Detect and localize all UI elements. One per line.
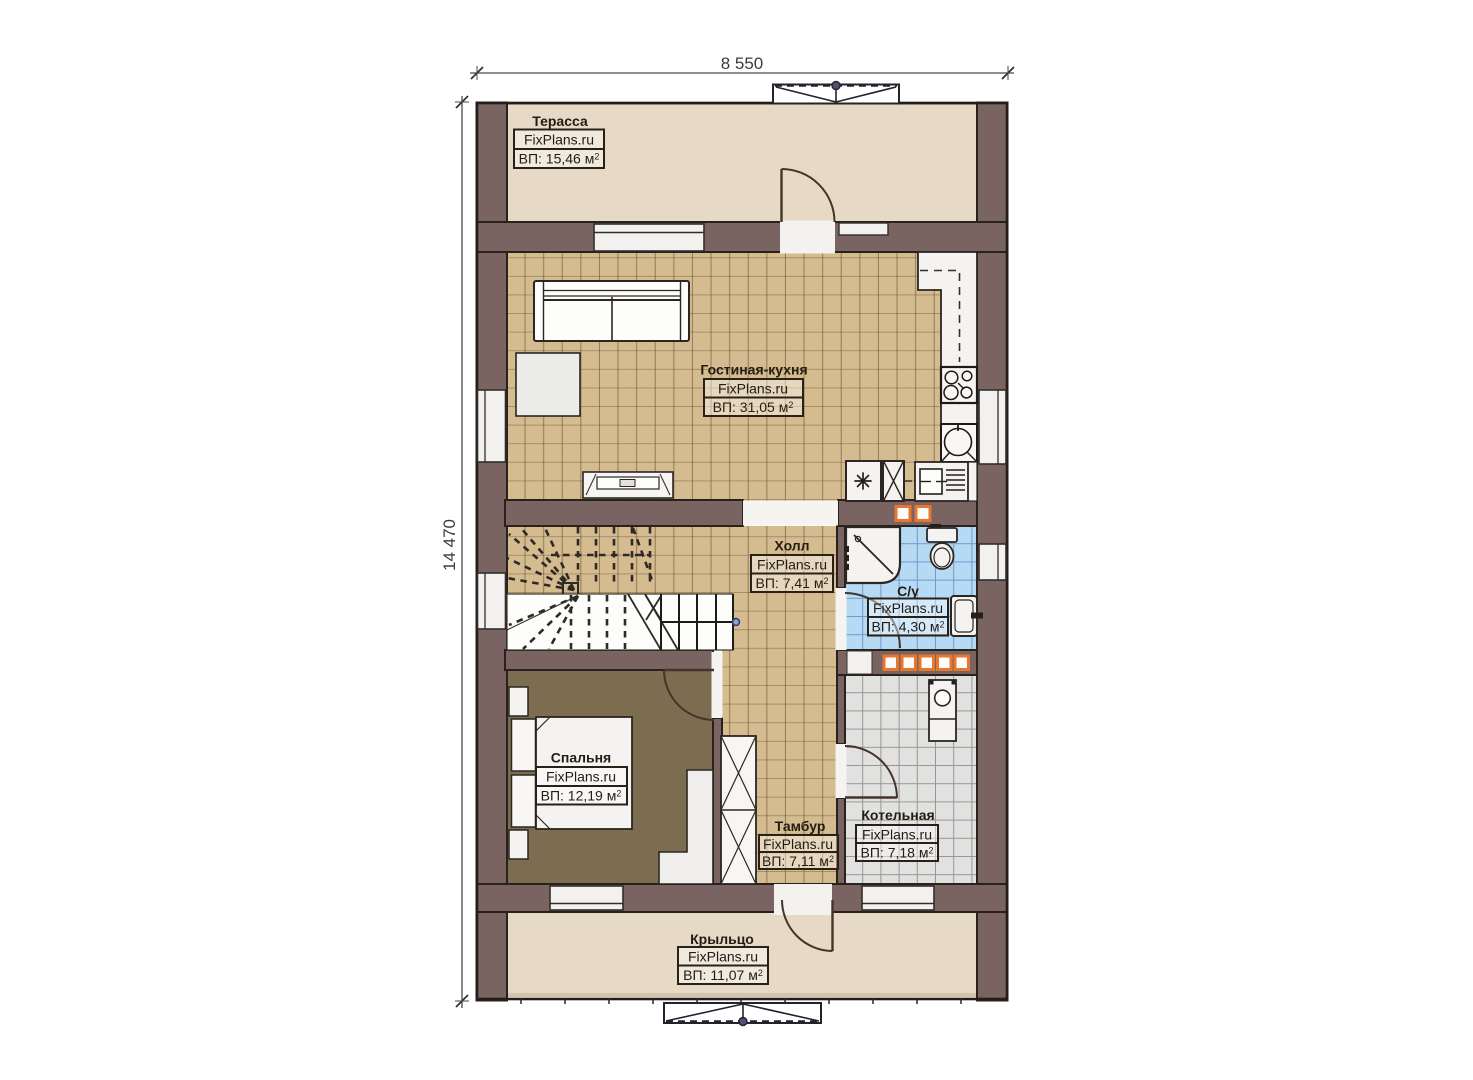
svg-text:ВП: 4,30 м2: ВП: 4,30 м2 [872, 619, 945, 635]
svg-text:FixPlans.ru: FixPlans.ru [763, 836, 833, 852]
svg-text:FixPlans.ru: FixPlans.ru [862, 827, 932, 843]
svg-text:FixPlans.ru: FixPlans.ru [688, 949, 758, 965]
svg-text:FixPlans.ru: FixPlans.ru [546, 769, 616, 785]
svg-text:8 550: 8 550 [721, 54, 764, 73]
svg-text:С/у: С/у [897, 583, 919, 599]
svg-text:FixPlans.ru: FixPlans.ru [718, 381, 788, 397]
svg-text:Тамбур: Тамбур [775, 818, 826, 834]
svg-text:ВП: 7,11 м2: ВП: 7,11 м2 [762, 853, 834, 869]
svg-text:Гостиная-кухня: Гостиная-кухня [700, 362, 807, 378]
svg-text:ВП: 7,41 м2: ВП: 7,41 м2 [756, 575, 829, 591]
svg-text:14 470: 14 470 [440, 519, 459, 571]
svg-text:Холл: Холл [774, 538, 809, 554]
svg-text:FixPlans.ru: FixPlans.ru [873, 600, 943, 616]
svg-text:FixPlans.ru: FixPlans.ru [757, 557, 827, 573]
svg-text:ВП: 12,19 м2: ВП: 12,19 м2 [541, 788, 622, 804]
svg-text:ВП: 15,46 м2: ВП: 15,46 м2 [519, 151, 600, 167]
svg-text:ВП: 31,05 м2: ВП: 31,05 м2 [713, 399, 794, 415]
svg-text:ВП: 11,07 м2: ВП: 11,07 м2 [683, 967, 763, 983]
svg-text:Котельная: Котельная [861, 807, 934, 823]
svg-text:Спальня: Спальня [551, 750, 611, 766]
svg-text:Крыльцо: Крыльцо [690, 931, 754, 947]
svg-text:Терасса: Терасса [532, 113, 588, 129]
svg-text:FixPlans.ru: FixPlans.ru [524, 132, 594, 148]
svg-text:ВП: 7,18 м2: ВП: 7,18 м2 [861, 845, 934, 861]
